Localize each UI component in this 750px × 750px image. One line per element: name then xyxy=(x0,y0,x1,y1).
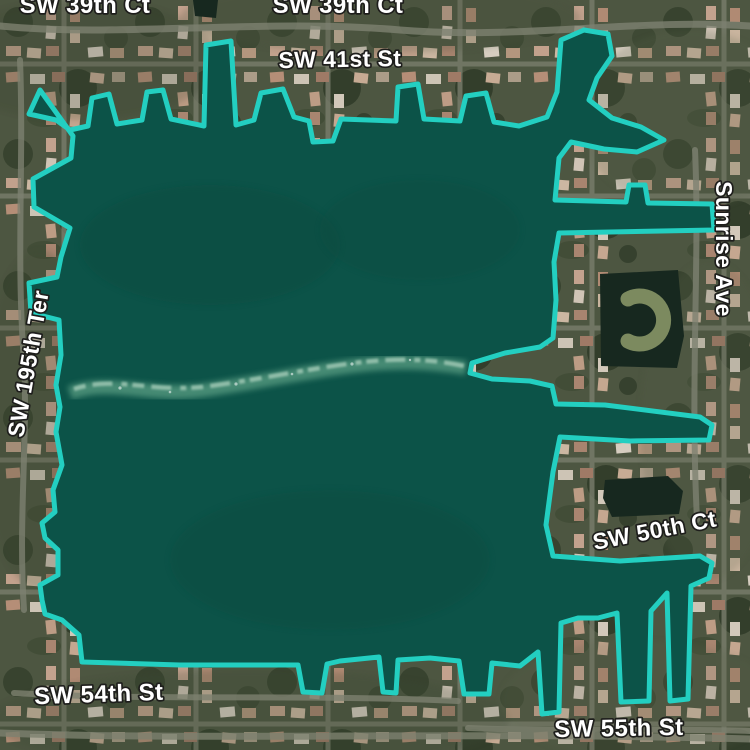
map-viewport[interactable]: SW 39th CtSW 39th CtSW 41st StSunrise Av… xyxy=(0,0,750,750)
street-label: SW 39th Ct xyxy=(273,0,404,19)
street-label: SW 41st St xyxy=(278,45,401,73)
street-label: SW 39th Ct xyxy=(20,0,151,19)
pond xyxy=(603,476,683,517)
pond xyxy=(600,270,684,368)
street-label: Sunrise Ave xyxy=(711,181,737,317)
street-label: SW 54th St xyxy=(34,679,164,710)
street-label: SW 55th St xyxy=(554,714,684,743)
satellite-map[interactable]: SW 39th CtSW 39th CtSW 41st StSunrise Av… xyxy=(0,0,750,750)
pond xyxy=(193,0,218,18)
